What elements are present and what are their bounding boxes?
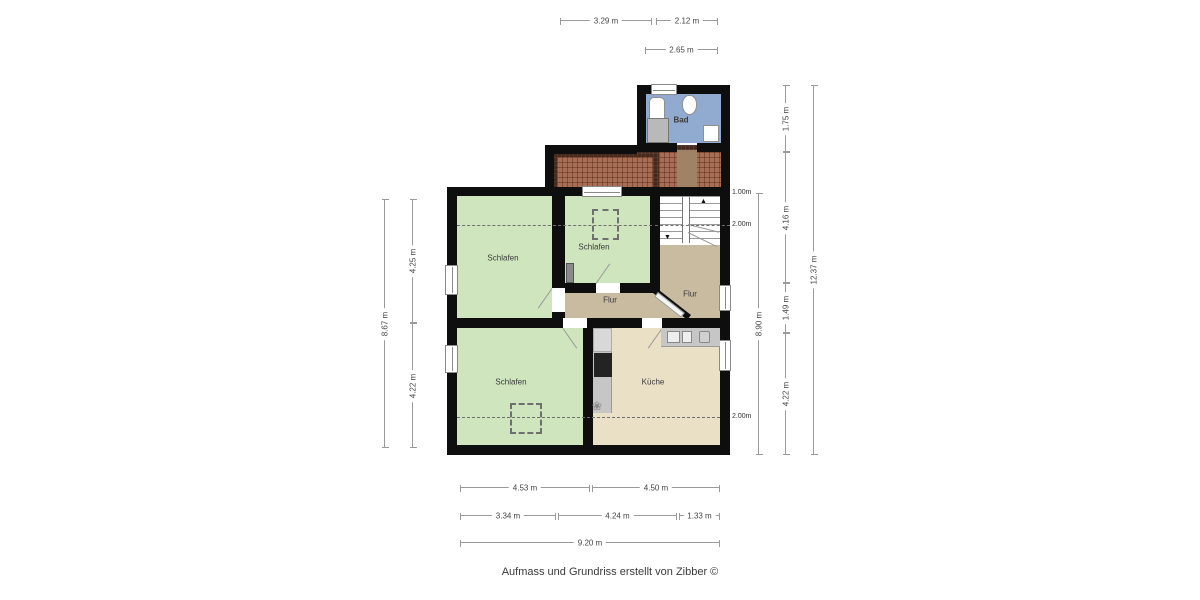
dimension-line: 1.33 m	[679, 515, 720, 516]
dimension-label: 2.12 m	[671, 17, 703, 26]
dimension-label: 4.25 m	[409, 245, 418, 277]
wall	[720, 196, 730, 455]
dimension-label: 4.53 m	[509, 484, 541, 493]
dimension-line: 9.20 m	[460, 542, 720, 543]
kitchen-appliance-icon	[699, 331, 710, 343]
roof-brick-left	[557, 157, 653, 188]
stairs-up-arrow-icon: ▲	[700, 198, 707, 205]
dimension-label: 4.22 m	[782, 378, 791, 410]
dormer-dashed-outline	[510, 403, 542, 434]
wall	[545, 145, 554, 190]
height-dashed-line	[457, 417, 720, 418]
stove-icon	[594, 353, 612, 377]
wall	[545, 145, 637, 154]
dimension-label: 9.20 m	[574, 539, 606, 548]
washbasin-icon	[703, 125, 719, 142]
height-marker: 2.00m	[732, 221, 751, 228]
wall	[697, 143, 730, 152]
kitchen-sink-icon	[667, 331, 680, 343]
dimension-line: 4.22 m	[785, 333, 786, 455]
dimension-line: 1.75 m	[785, 85, 786, 152]
dimension-line: 4.50 m	[592, 487, 720, 488]
window	[651, 84, 677, 95]
kitchen-sink-icon	[682, 331, 692, 343]
dimension-line: 2.65 m	[645, 49, 718, 50]
height-dashed-line	[457, 225, 652, 226]
roof-passage	[677, 150, 697, 190]
height-marker: 2.00m	[732, 413, 751, 420]
dimension-label: 1.75 m	[782, 102, 791, 134]
door-gap	[563, 318, 587, 328]
dimension-label: 1.33 m	[683, 512, 715, 521]
toilet-icon	[682, 95, 697, 115]
wall	[650, 196, 660, 293]
wall	[447, 187, 457, 455]
plant-icon: ❀	[592, 400, 602, 412]
dimension-line: 4.53 m	[460, 487, 590, 488]
dimension-label: 4.50 m	[640, 484, 672, 493]
wall	[721, 152, 730, 196]
window	[582, 186, 622, 197]
dimension-line: 8.90 m	[758, 193, 759, 455]
wall	[583, 328, 593, 445]
dimension-label: 2.65 m	[665, 46, 697, 55]
dimension-line: 8.67 m	[384, 199, 385, 448]
window	[445, 265, 458, 295]
dimension-line: 4.16 m	[785, 152, 786, 283]
dormer-dashed-outline	[592, 209, 619, 240]
dimension-label: 12.37 m	[810, 252, 819, 289]
dimension-line: 3.29 m	[560, 20, 652, 21]
dimension-label: 4.16 m	[782, 201, 791, 233]
room-label-kueche: Küche	[642, 378, 665, 387]
dimension-label: 4.24 m	[601, 512, 633, 521]
room-label-schlafen-sw: Schlafen	[495, 378, 526, 387]
dimension-line: 4.22 m	[412, 323, 413, 448]
window	[719, 340, 731, 371]
window	[445, 345, 458, 373]
room-label-schlafen-n: Schlafen	[578, 243, 609, 252]
dimension-label: 8.90 m	[755, 308, 764, 340]
radiator-icon	[566, 263, 574, 283]
dimension-line: 4.24 m	[558, 515, 677, 516]
height-marker: 1.00m	[732, 189, 751, 196]
door-gap	[552, 288, 565, 312]
stairs-divider	[682, 197, 690, 243]
fridge-icon	[593, 328, 612, 352]
height-dashed-line	[655, 225, 730, 226]
dimension-line: 3.34 m	[460, 515, 556, 516]
stairs-down-arrow-icon: ▼	[664, 234, 671, 241]
dimension-label: 4.22 m	[409, 369, 418, 401]
dimension-label: 3.34 m	[492, 512, 524, 521]
room-label-schlafen-nw: Schlafen	[487, 254, 518, 263]
dimension-line: 1.49 m	[785, 283, 786, 333]
room-label-bad: Bad	[673, 116, 688, 125]
wall	[637, 143, 677, 152]
dimension-line: 12.37 m	[813, 85, 814, 455]
wall	[457, 318, 730, 328]
door-gap	[642, 318, 662, 328]
dimension-label: 8.67 m	[381, 307, 390, 339]
wall	[447, 445, 730, 455]
window	[719, 285, 731, 311]
wall	[637, 85, 646, 152]
room-label-flur-e: Flur	[683, 290, 697, 299]
dimension-line: 2.12 m	[656, 20, 718, 21]
door-gap	[596, 283, 620, 293]
dimension-label: 3.29 m	[590, 17, 622, 26]
footer-credit: Aufmass und Grundriss erstellt von Zibbe…	[502, 566, 719, 578]
floor-plan-canvas: Bad ▲ ▼ 1.00m 2.00m 2.00m S	[0, 0, 1200, 600]
dimension-label: 1.49 m	[782, 292, 791, 324]
shower-icon	[647, 118, 669, 143]
room-label-flur-w: Flur	[603, 296, 617, 305]
wall	[721, 85, 730, 152]
dimension-line: 4.25 m	[412, 199, 413, 323]
